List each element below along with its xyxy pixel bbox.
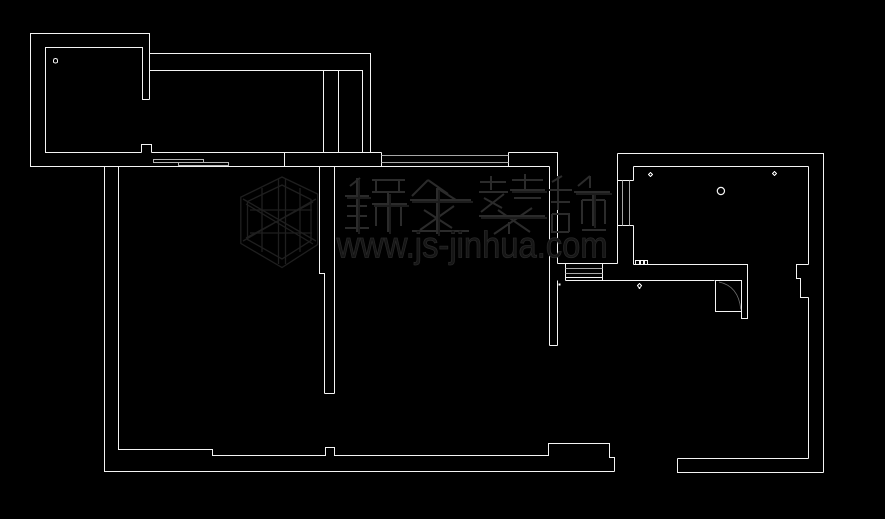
svg-text:www.js-jinhua.com: www.js-jinhua.com <box>336 225 608 266</box>
